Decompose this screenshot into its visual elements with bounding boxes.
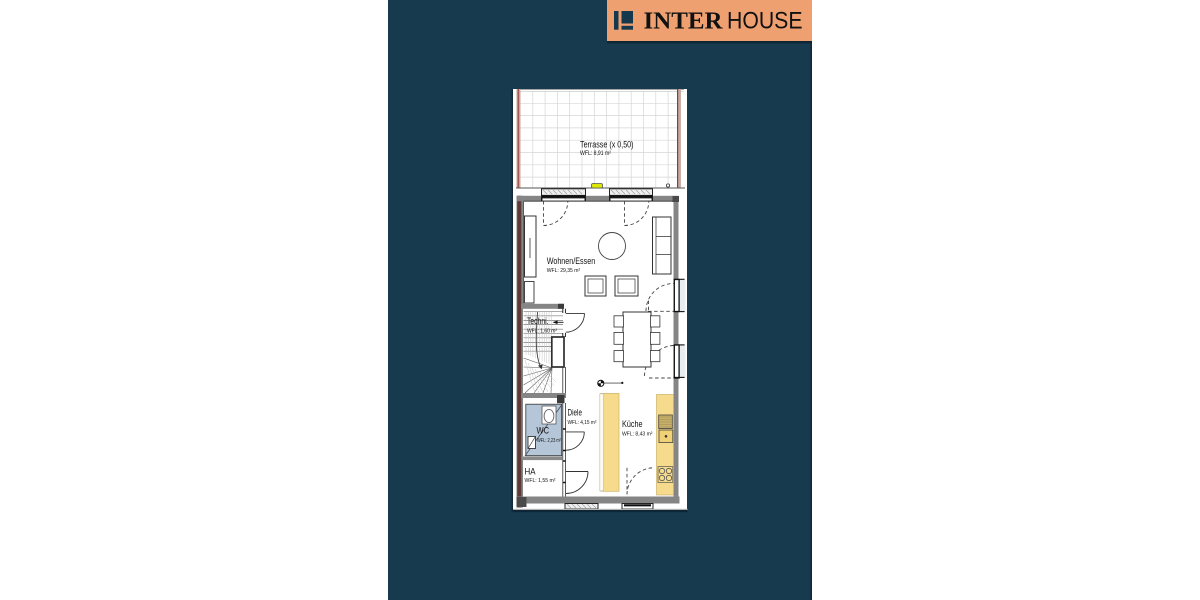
svg-text:Terrasse (x 0,50): Terrasse (x 0,50) [580,139,634,150]
svg-text:WFL: 4,15 m²: WFL: 4,15 m² [568,420,597,426]
svg-text:INTER: INTER [644,8,724,34]
svg-text:HA: HA [525,467,536,477]
svg-text:WFL: 1,60 m²: WFL: 1,60 m² [527,329,557,335]
svg-text:HOUSE: HOUSE [727,7,803,34]
svg-text:Küche: Küche [622,419,643,429]
svg-text:WFL: 2,23 m²: WFL: 2,23 m² [537,438,561,444]
svg-text:WFL: 8,91 m²: WFL: 8,91 m² [580,150,611,157]
svg-text:WC: WC [537,426,550,436]
svg-text:WFL: 29,35 m²: WFL: 29,35 m² [547,268,581,274]
svg-text:Wohnen/Essen: Wohnen/Essen [547,256,596,266]
svg-text:WFL: 1,55 m²: WFL: 1,55 m² [525,478,556,484]
svg-text:WFL: 8,43 m²: WFL: 8,43 m² [622,432,653,438]
svg-text:Techni.: Techni. [527,316,549,326]
svg-text:Diele: Diele [568,408,583,418]
